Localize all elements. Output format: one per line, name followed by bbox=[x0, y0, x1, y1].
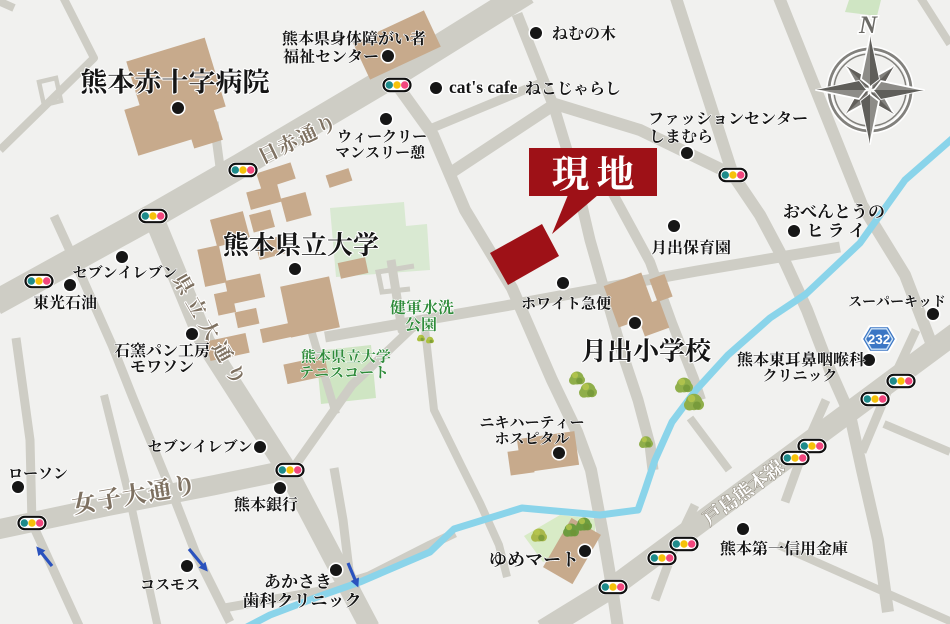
svg-text:N: N bbox=[858, 12, 878, 39]
svg-text:232: 232 bbox=[868, 332, 891, 347]
svg-text:cat's cafe: cat's cafe bbox=[449, 77, 518, 97]
